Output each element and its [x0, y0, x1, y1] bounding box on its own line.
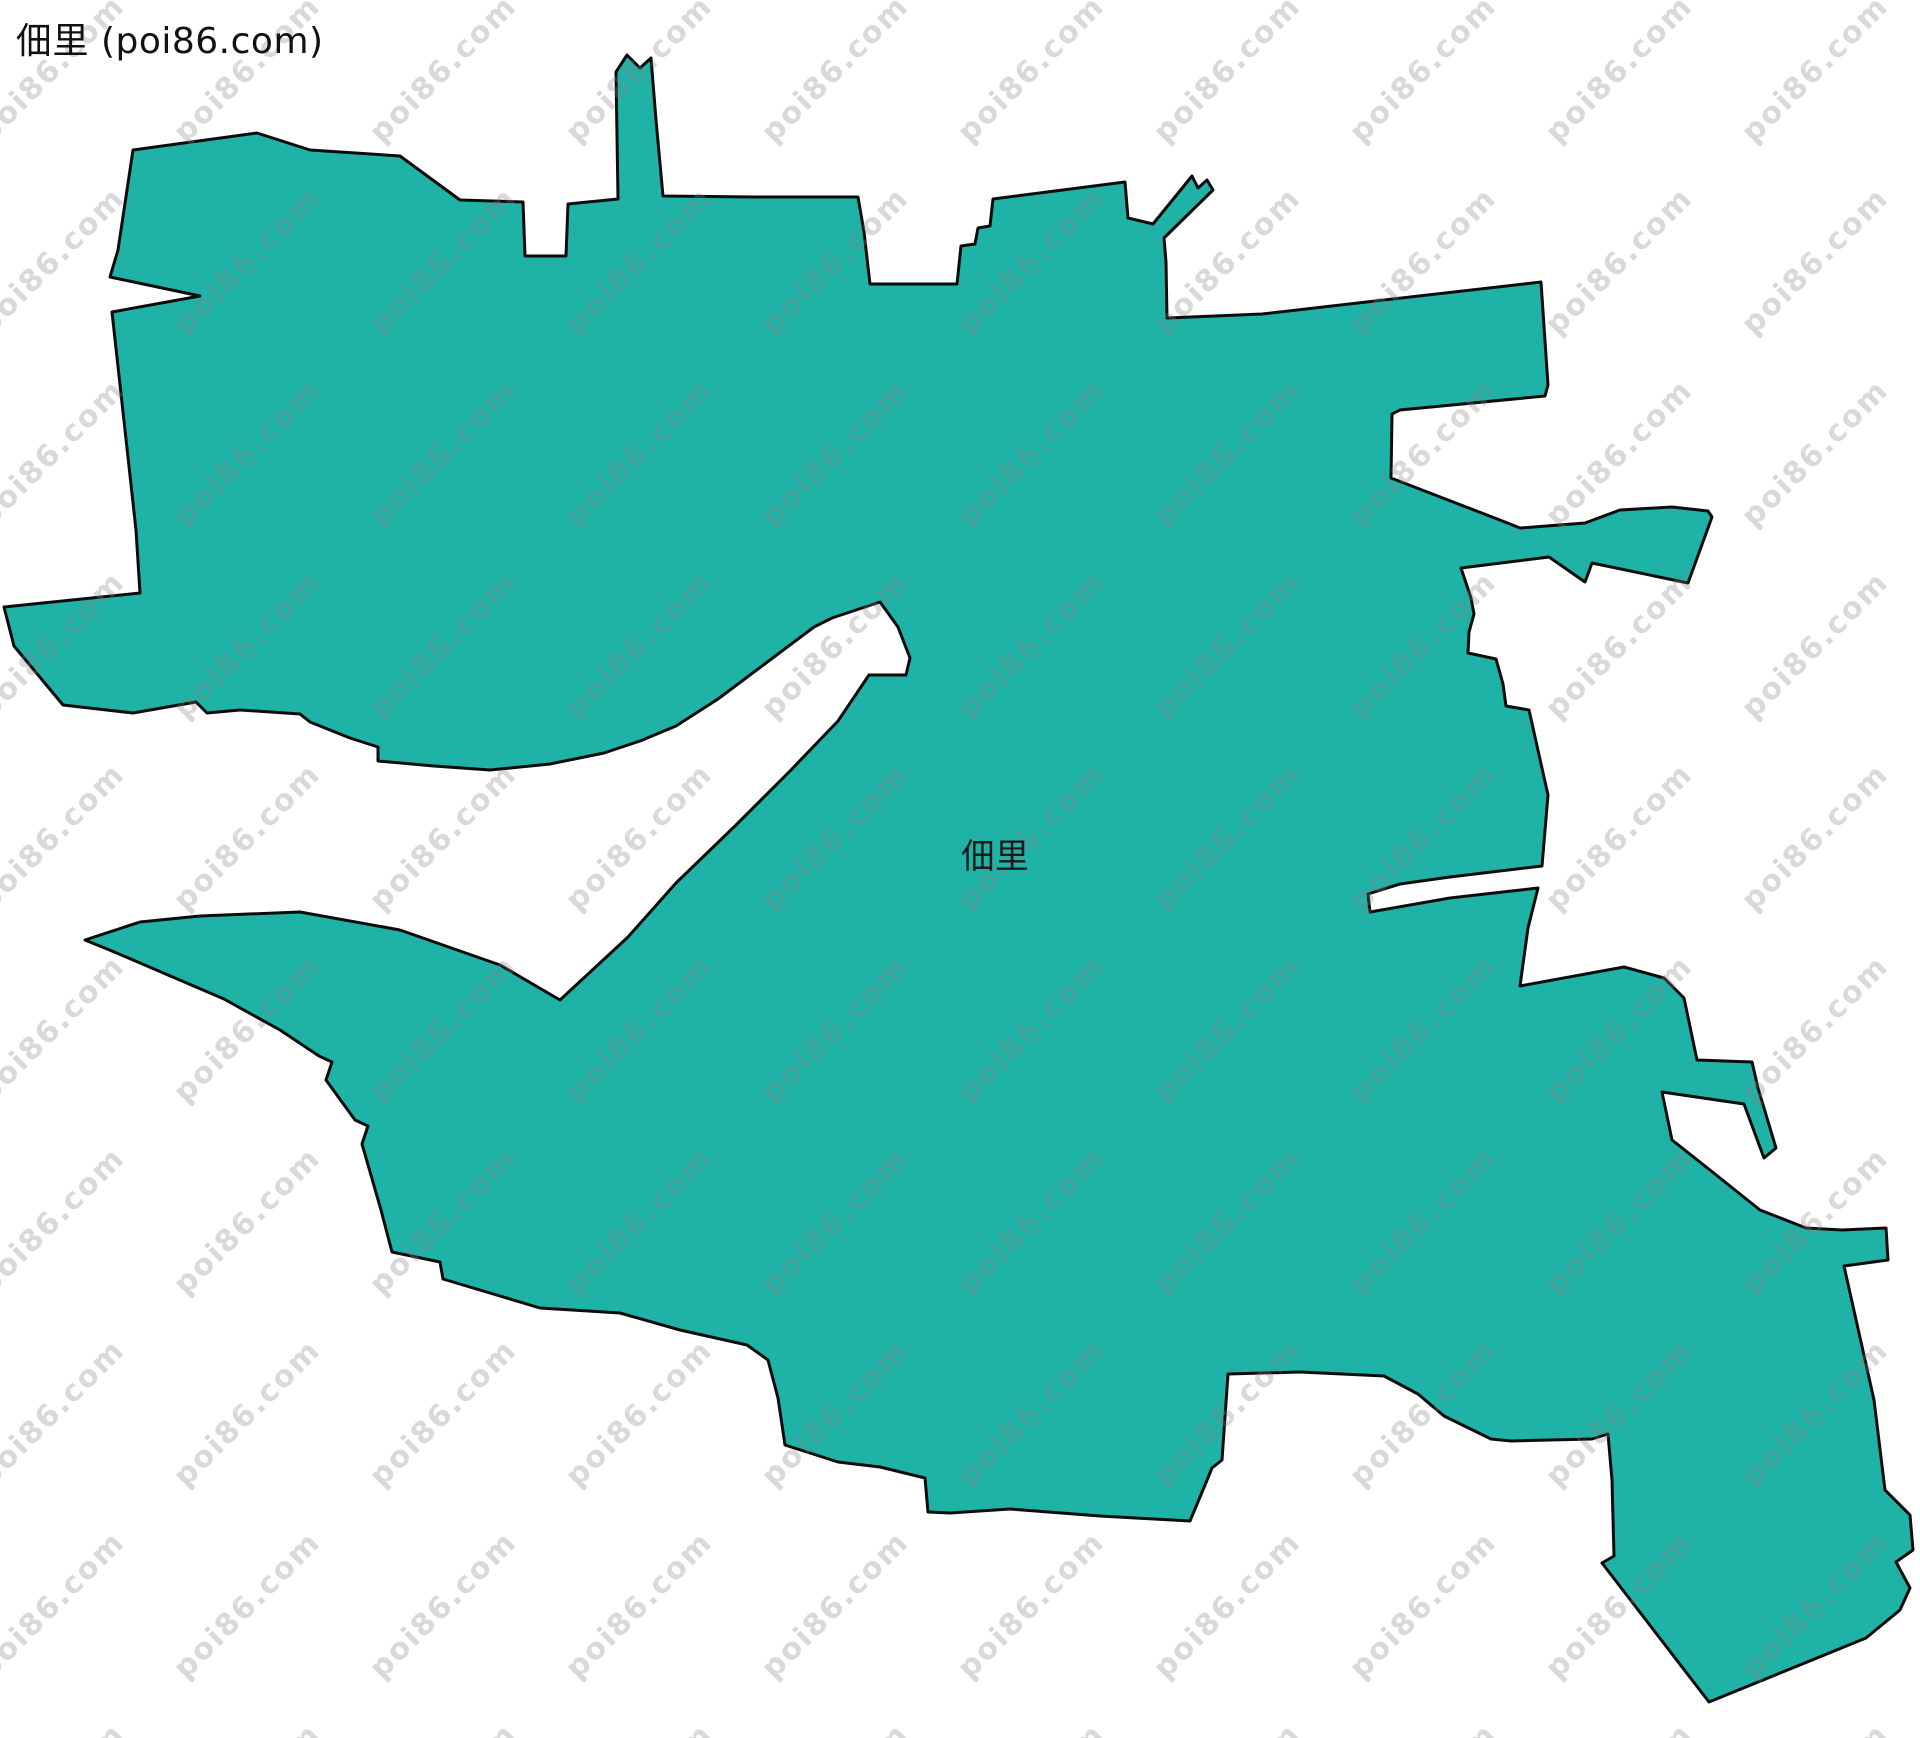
- region-label: 佃里: [961, 837, 1029, 877]
- map-page: 佃里 (poi86.com) poi86.com 佃里: [0, 0, 1920, 1738]
- map-canvas: poi86.com 佃里: [0, 0, 1920, 1738]
- watermark-overlay: [0, 0, 1920, 1738]
- page-title: 佃里 (poi86.com): [16, 12, 324, 64]
